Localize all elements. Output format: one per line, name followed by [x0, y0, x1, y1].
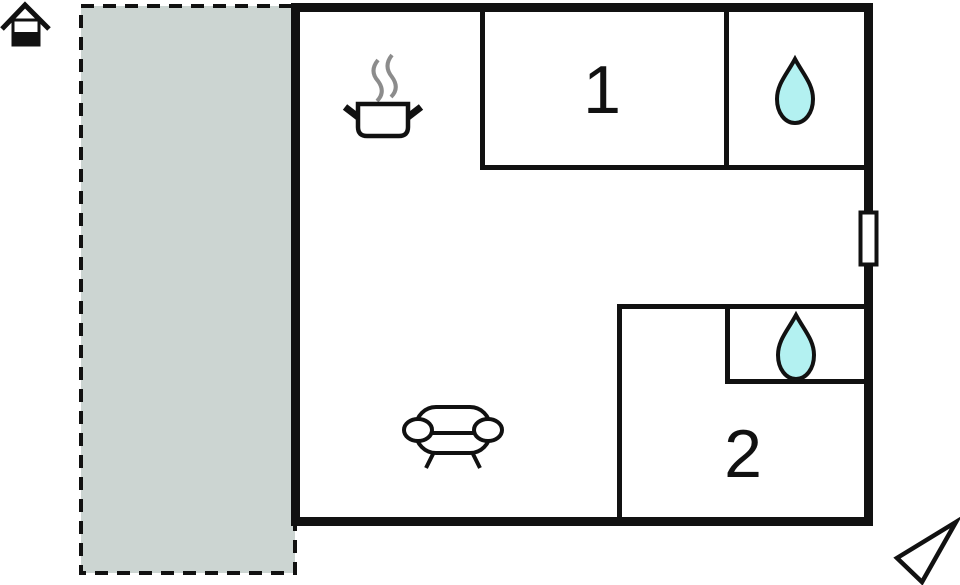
sofa-armrest-left — [404, 419, 432, 441]
house-body-lower — [15, 32, 38, 44]
floor-plan-canvas: 1 2 — [0, 0, 960, 585]
room-label-2: 2 — [724, 416, 762, 492]
window-marker — [861, 213, 877, 265]
house-icon — [2, 5, 49, 45]
room-label-1: 1 — [583, 52, 621, 128]
sofa-armrest-right — [474, 419, 502, 441]
north-arrow-shape — [897, 522, 956, 582]
terrace-area — [81, 6, 295, 573]
floor-plan-svg: 1 2 — [0, 0, 960, 585]
north-arrow-icon — [897, 522, 956, 582]
pot-body — [358, 104, 408, 136]
